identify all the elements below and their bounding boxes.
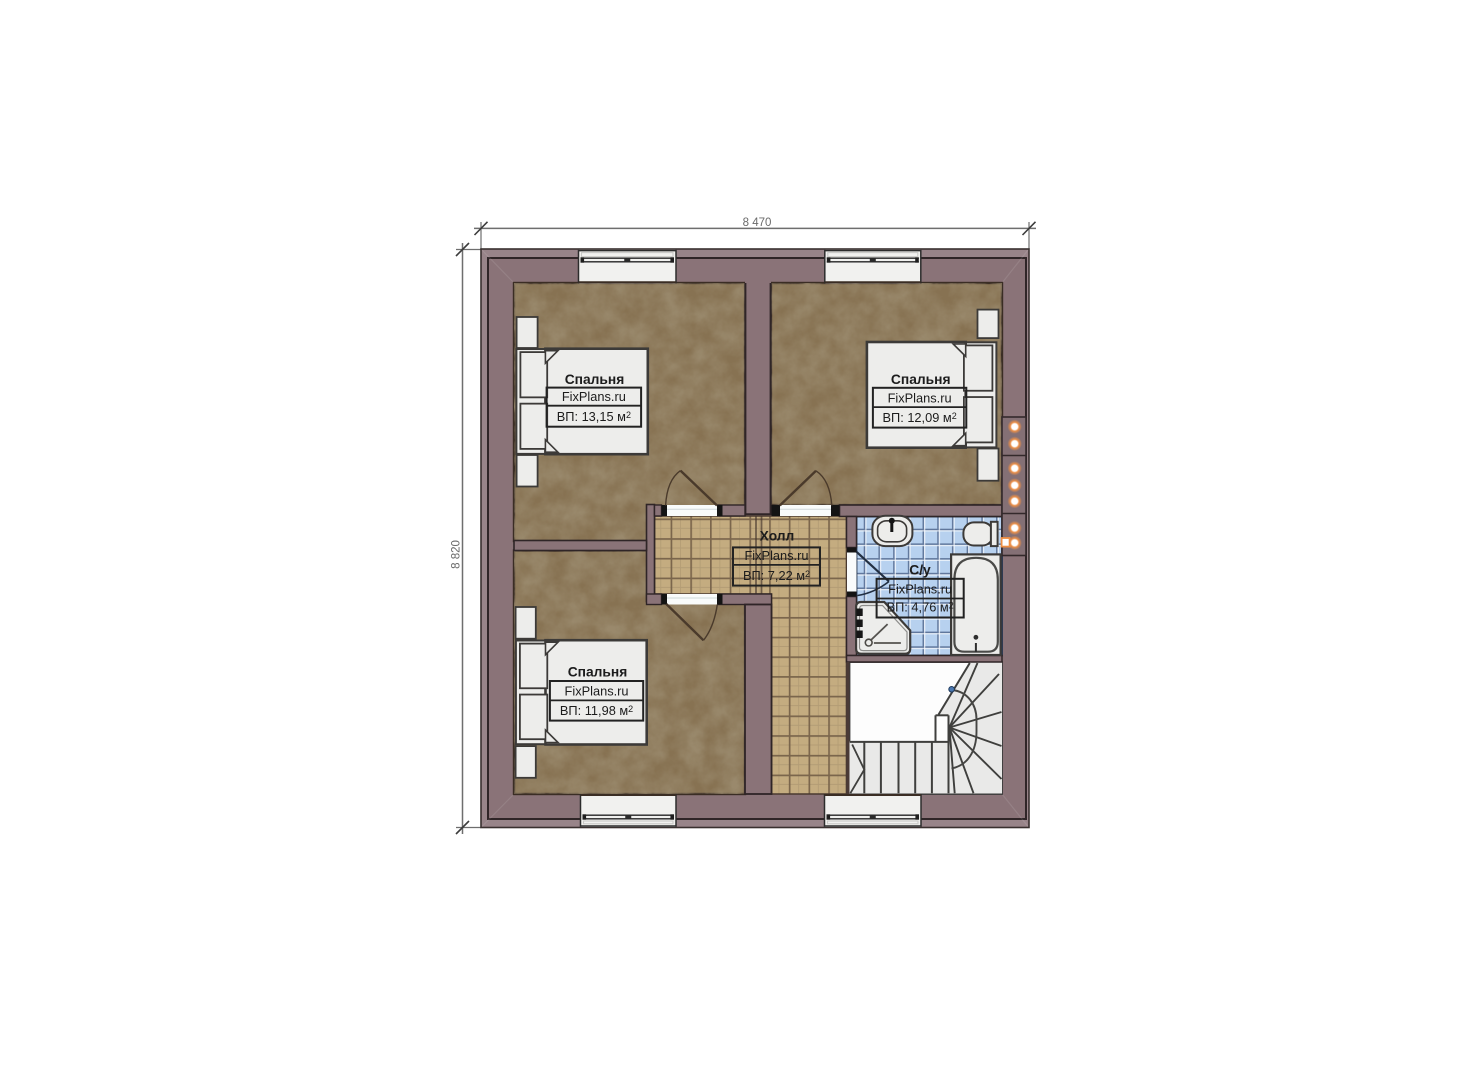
svg-text:ВП: 12,09 м2: ВП: 12,09 м2 bbox=[882, 410, 956, 425]
svg-text:FixPlans.ru: FixPlans.ru bbox=[888, 390, 952, 405]
svg-text:Спальня: Спальня bbox=[568, 664, 628, 679]
svg-text:ВП: 11,98 м2: ВП: 11,98 м2 bbox=[560, 703, 633, 718]
svg-text:Спальня: Спальня bbox=[565, 372, 625, 387]
svg-text:Холл: Холл bbox=[760, 529, 795, 544]
svg-text:FixPlans.ru: FixPlans.ru bbox=[562, 389, 626, 404]
svg-text:FixPlans.ru: FixPlans.ru bbox=[888, 582, 952, 597]
svg-text:ВП: 7,22 м2: ВП: 7,22 м2 bbox=[743, 568, 810, 583]
svg-text:С/у: С/у bbox=[909, 563, 931, 578]
svg-text:FixPlans.ru: FixPlans.ru bbox=[744, 548, 808, 563]
svg-text:8 470: 8 470 bbox=[743, 217, 772, 229]
svg-text:Спальня: Спальня bbox=[891, 372, 951, 387]
svg-text:FixPlans.ru: FixPlans.ru bbox=[565, 684, 629, 699]
svg-text:ВП: 4,76 м2: ВП: 4,76 м2 bbox=[887, 600, 954, 615]
svg-text:ВП: 13,15 м2: ВП: 13,15 м2 bbox=[557, 409, 631, 424]
svg-text:8 820: 8 820 bbox=[451, 540, 463, 569]
